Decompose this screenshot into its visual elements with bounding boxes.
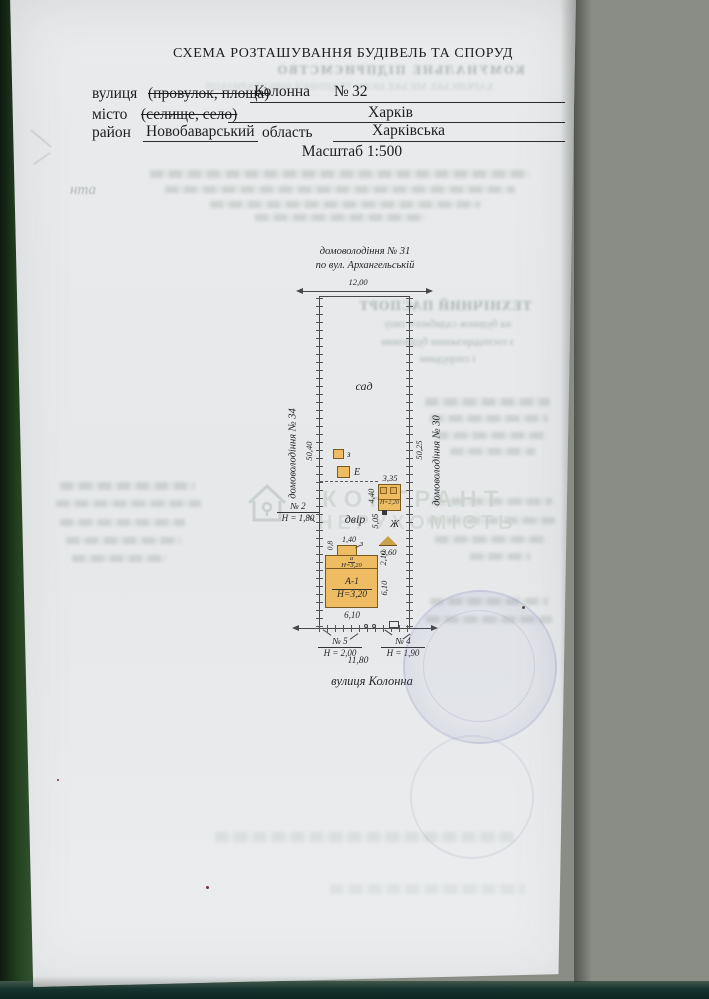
shed-e (337, 466, 350, 478)
gap-dim: 5,05 (370, 506, 380, 536)
shed-e-label: Е (354, 467, 360, 478)
north-neighbor-label: домоволодіння № 31 (304, 246, 426, 257)
annex-depth-dim: 2,10 (378, 543, 388, 573)
west-neighbor-label: домоволодіння № 34 (288, 389, 299, 519)
shed-z-label: з (347, 449, 351, 459)
bleed-smudge (330, 884, 525, 894)
garden-label: сад (348, 379, 380, 394)
round-stamp-inner (423, 610, 535, 722)
shed-zh-height-note: Н=2,20 (379, 499, 400, 506)
gate-post (364, 624, 368, 628)
dimension-line (300, 291, 428, 292)
east-neighbor-label: домоволодіння № 30 (432, 396, 443, 526)
street-options-struck: (провулок, площа) (148, 85, 269, 103)
bleed-smudge (435, 536, 545, 543)
main-house-label: А-1 (332, 577, 372, 590)
arrowhead (296, 288, 303, 294)
house-number: 32 (352, 83, 368, 101)
porch-width-dim: 1,40 (337, 535, 361, 544)
street-value: Колонна (254, 83, 310, 101)
main-house-callout: А-1 Н=3,20 (332, 577, 372, 602)
north-neighbor-street-label: по вул. Архангельській (300, 260, 430, 271)
zh-width-dim: 3,35 (377, 473, 403, 483)
paper-edge-shadow (574, 0, 592, 982)
bleed-smudge (72, 555, 167, 562)
street-label: вулиця (92, 85, 137, 103)
bleed-smudge (56, 500, 201, 507)
porch-label: з (360, 539, 363, 548)
front-width-dim: 12,00 (343, 277, 373, 287)
form-underline (143, 141, 258, 142)
bleed-smudge (425, 398, 550, 406)
house-depth-dim: 6,10 (379, 573, 389, 603)
boundary-west-ticks (316, 298, 323, 628)
shed-zh-room (390, 487, 397, 494)
bleed-smudge (470, 553, 530, 560)
bleed-smudge (150, 170, 530, 178)
scanned-document-photo: КОМУНАЛЬНЕ ПІДПРИЄМСТВО ХАРКІВСЬКЕ МІСЬК… (0, 0, 709, 999)
region-value: Харківська (372, 122, 445, 140)
bleed-smudge (210, 201, 480, 208)
region-label: область (262, 124, 313, 142)
east-length-dim: 50,25 (414, 430, 424, 470)
city-label: місто (92, 106, 127, 124)
bleed-through-text: КОМУНАЛЬНЕ ПІДПРИЄМСТВО (250, 63, 550, 78)
main-house-height: Н=3,20 (332, 590, 372, 602)
bleed-smudge (60, 519, 185, 526)
annex-strip: а Н=3,20 (325, 555, 378, 569)
fence5-number: № 5 (318, 636, 362, 648)
shed-zh-room (380, 487, 387, 494)
number-sign: № (334, 83, 349, 101)
bleed-through-text: і спорудами (340, 353, 555, 365)
speck (57, 779, 59, 781)
bleed-through-text: ТЕХНІЧНИЙ ПАСПОРТ (335, 298, 555, 314)
form-underline (250, 102, 565, 103)
city-options-struck: (селище, село) (141, 106, 237, 124)
shed-z (333, 449, 344, 459)
page-content: КОМУНАЛЬНЕ ПІДПРИЄМСТВО ХАРКІВСЬКЕ МІСЬК… (0, 0, 709, 999)
gate (389, 621, 399, 628)
boundary-east-ticks (406, 298, 413, 628)
watermark-line1: КОНГРАНТ (322, 486, 505, 514)
bleed-smudge (60, 482, 195, 490)
bleed-smudge (165, 186, 515, 193)
bleed-smudge (255, 214, 425, 221)
arrowhead (426, 288, 433, 294)
bleed-through-text: з господарськими будівлями (340, 336, 555, 348)
city-value: Харків (368, 104, 413, 122)
fence2-number: № 2 (277, 501, 319, 513)
round-stamp-faint (410, 735, 534, 859)
speck (522, 606, 525, 609)
gate-post (372, 624, 376, 628)
scale-label: Масштаб 1:500 (292, 143, 412, 161)
bleed-through-text: на будинок садибного типу (340, 318, 555, 330)
pencil-note: нта (70, 182, 96, 199)
bleed-smudge (66, 537, 181, 544)
shed-zh-label: Ж (390, 519, 399, 530)
arrowhead (292, 625, 299, 631)
form-underline (333, 141, 565, 142)
house-width-dim: 6,10 (337, 610, 367, 620)
yard-label: двір (337, 512, 373, 527)
district-value: Новобаварський (146, 123, 255, 141)
bleed-smudge (435, 432, 545, 439)
page-title: СХЕМА РОЗТАШУВАННЯ БУДІВЕЛЬ ТА СПОРУД (150, 46, 536, 62)
boundary-north (319, 296, 410, 297)
street-width-dim: 11,80 (338, 656, 378, 666)
pencil-stroke (31, 130, 52, 147)
pencil-stroke (34, 152, 51, 164)
bleed-smudge (450, 448, 535, 455)
west-length-dim: 50,40 (304, 431, 314, 471)
bleed-smudge (430, 415, 548, 422)
document-page: КОМУНАЛЬНЕ ПІДПРИЄМСТВО ХАРКІВСЬКЕ МІСЬК… (10, 0, 576, 988)
plan-marker (382, 510, 387, 515)
speck (206, 886, 209, 889)
district-label: район (92, 124, 131, 142)
